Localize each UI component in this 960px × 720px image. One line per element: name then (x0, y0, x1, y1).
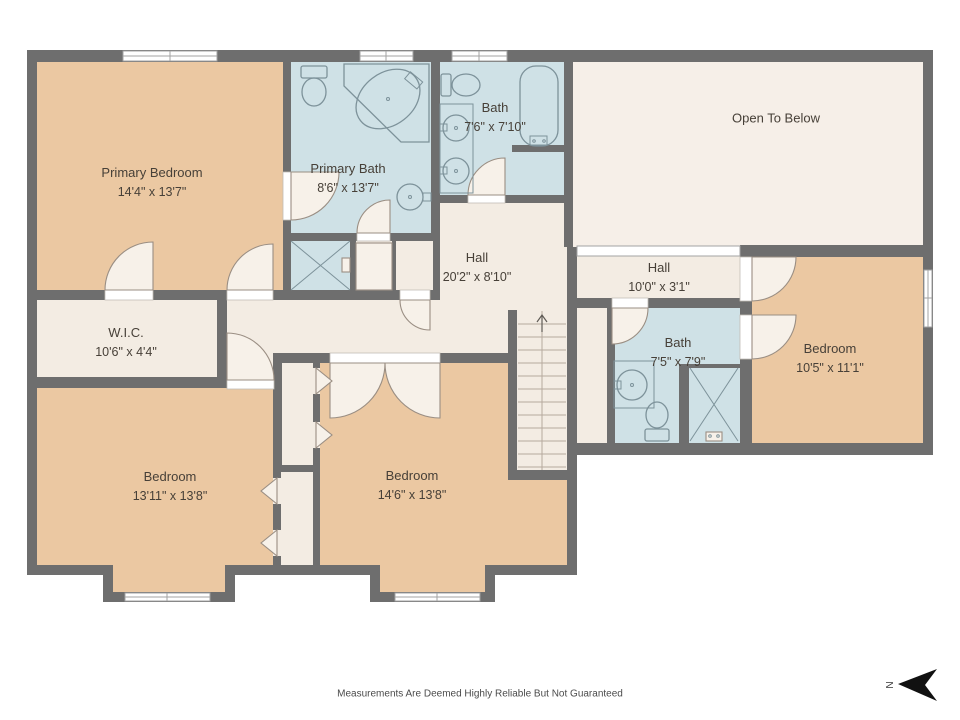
linen-closet (356, 243, 392, 290)
room-label-bath-top: Bath 7'6" x 7'10" (464, 98, 526, 136)
window (452, 51, 507, 61)
window (360, 51, 413, 61)
room-label-bath-right: Bath 7'5" x 7'9" (651, 333, 706, 371)
door-bedroom-right-1 (740, 257, 752, 301)
room-label-primary-bedroom: Primary Bedroom 14'4" x 13'7" (101, 163, 202, 201)
door-primary-bedroom-hall (227, 290, 273, 300)
door-primary-bath (283, 172, 291, 220)
door-bedroom-middle-double (330, 353, 440, 363)
north-label: N (885, 681, 896, 688)
room-label-hall-upper: Hall 10'0" x 3'1" (628, 258, 690, 296)
room-label-open-to-below: Open To Below (732, 108, 820, 128)
north-arrow: N (885, 669, 937, 701)
door-linen-closet (357, 233, 390, 241)
door-primary-bedroom-wic (105, 290, 153, 300)
window (125, 593, 210, 601)
bedroom-middle-bay (380, 565, 485, 593)
window (395, 593, 480, 601)
bedroom-middle-extension (508, 480, 567, 565)
open-to-below-railing (577, 246, 740, 256)
room-label-primary-bath: Primary Bath 8'6" x 13'7" (310, 159, 385, 197)
disclaimer-text: Measurements Are Deemed Highly Reliable … (337, 689, 623, 700)
room-label-bedroom-right: Bedroom 10'5" x 11'1" (796, 339, 864, 377)
window (924, 270, 932, 327)
room-label-wic: W.I.C. 10'6" x 4'4" (95, 323, 157, 361)
north-arrow-icon (898, 669, 937, 701)
room-open-to-below (573, 60, 923, 247)
room-label-hall-main: Hall 20'2" x 8'10" (443, 248, 512, 286)
room-label-bedroom-left: Bedroom 13'11" x 13'8" (133, 467, 208, 505)
door-bath-top (468, 195, 505, 203)
floor-plan-page: N Primary Bedroom 14'4" x 13'7" Primary … (0, 0, 960, 720)
door-bedroom-right-2 (740, 315, 752, 359)
door-bedroom-left (227, 380, 274, 389)
room-label-bedroom-middle: Bedroom 14'6" x 13'8" (378, 466, 447, 504)
door-bath-right (612, 298, 648, 308)
bedroom-left-bay (113, 565, 225, 593)
door-hall-closet (400, 290, 430, 300)
window (123, 51, 217, 61)
